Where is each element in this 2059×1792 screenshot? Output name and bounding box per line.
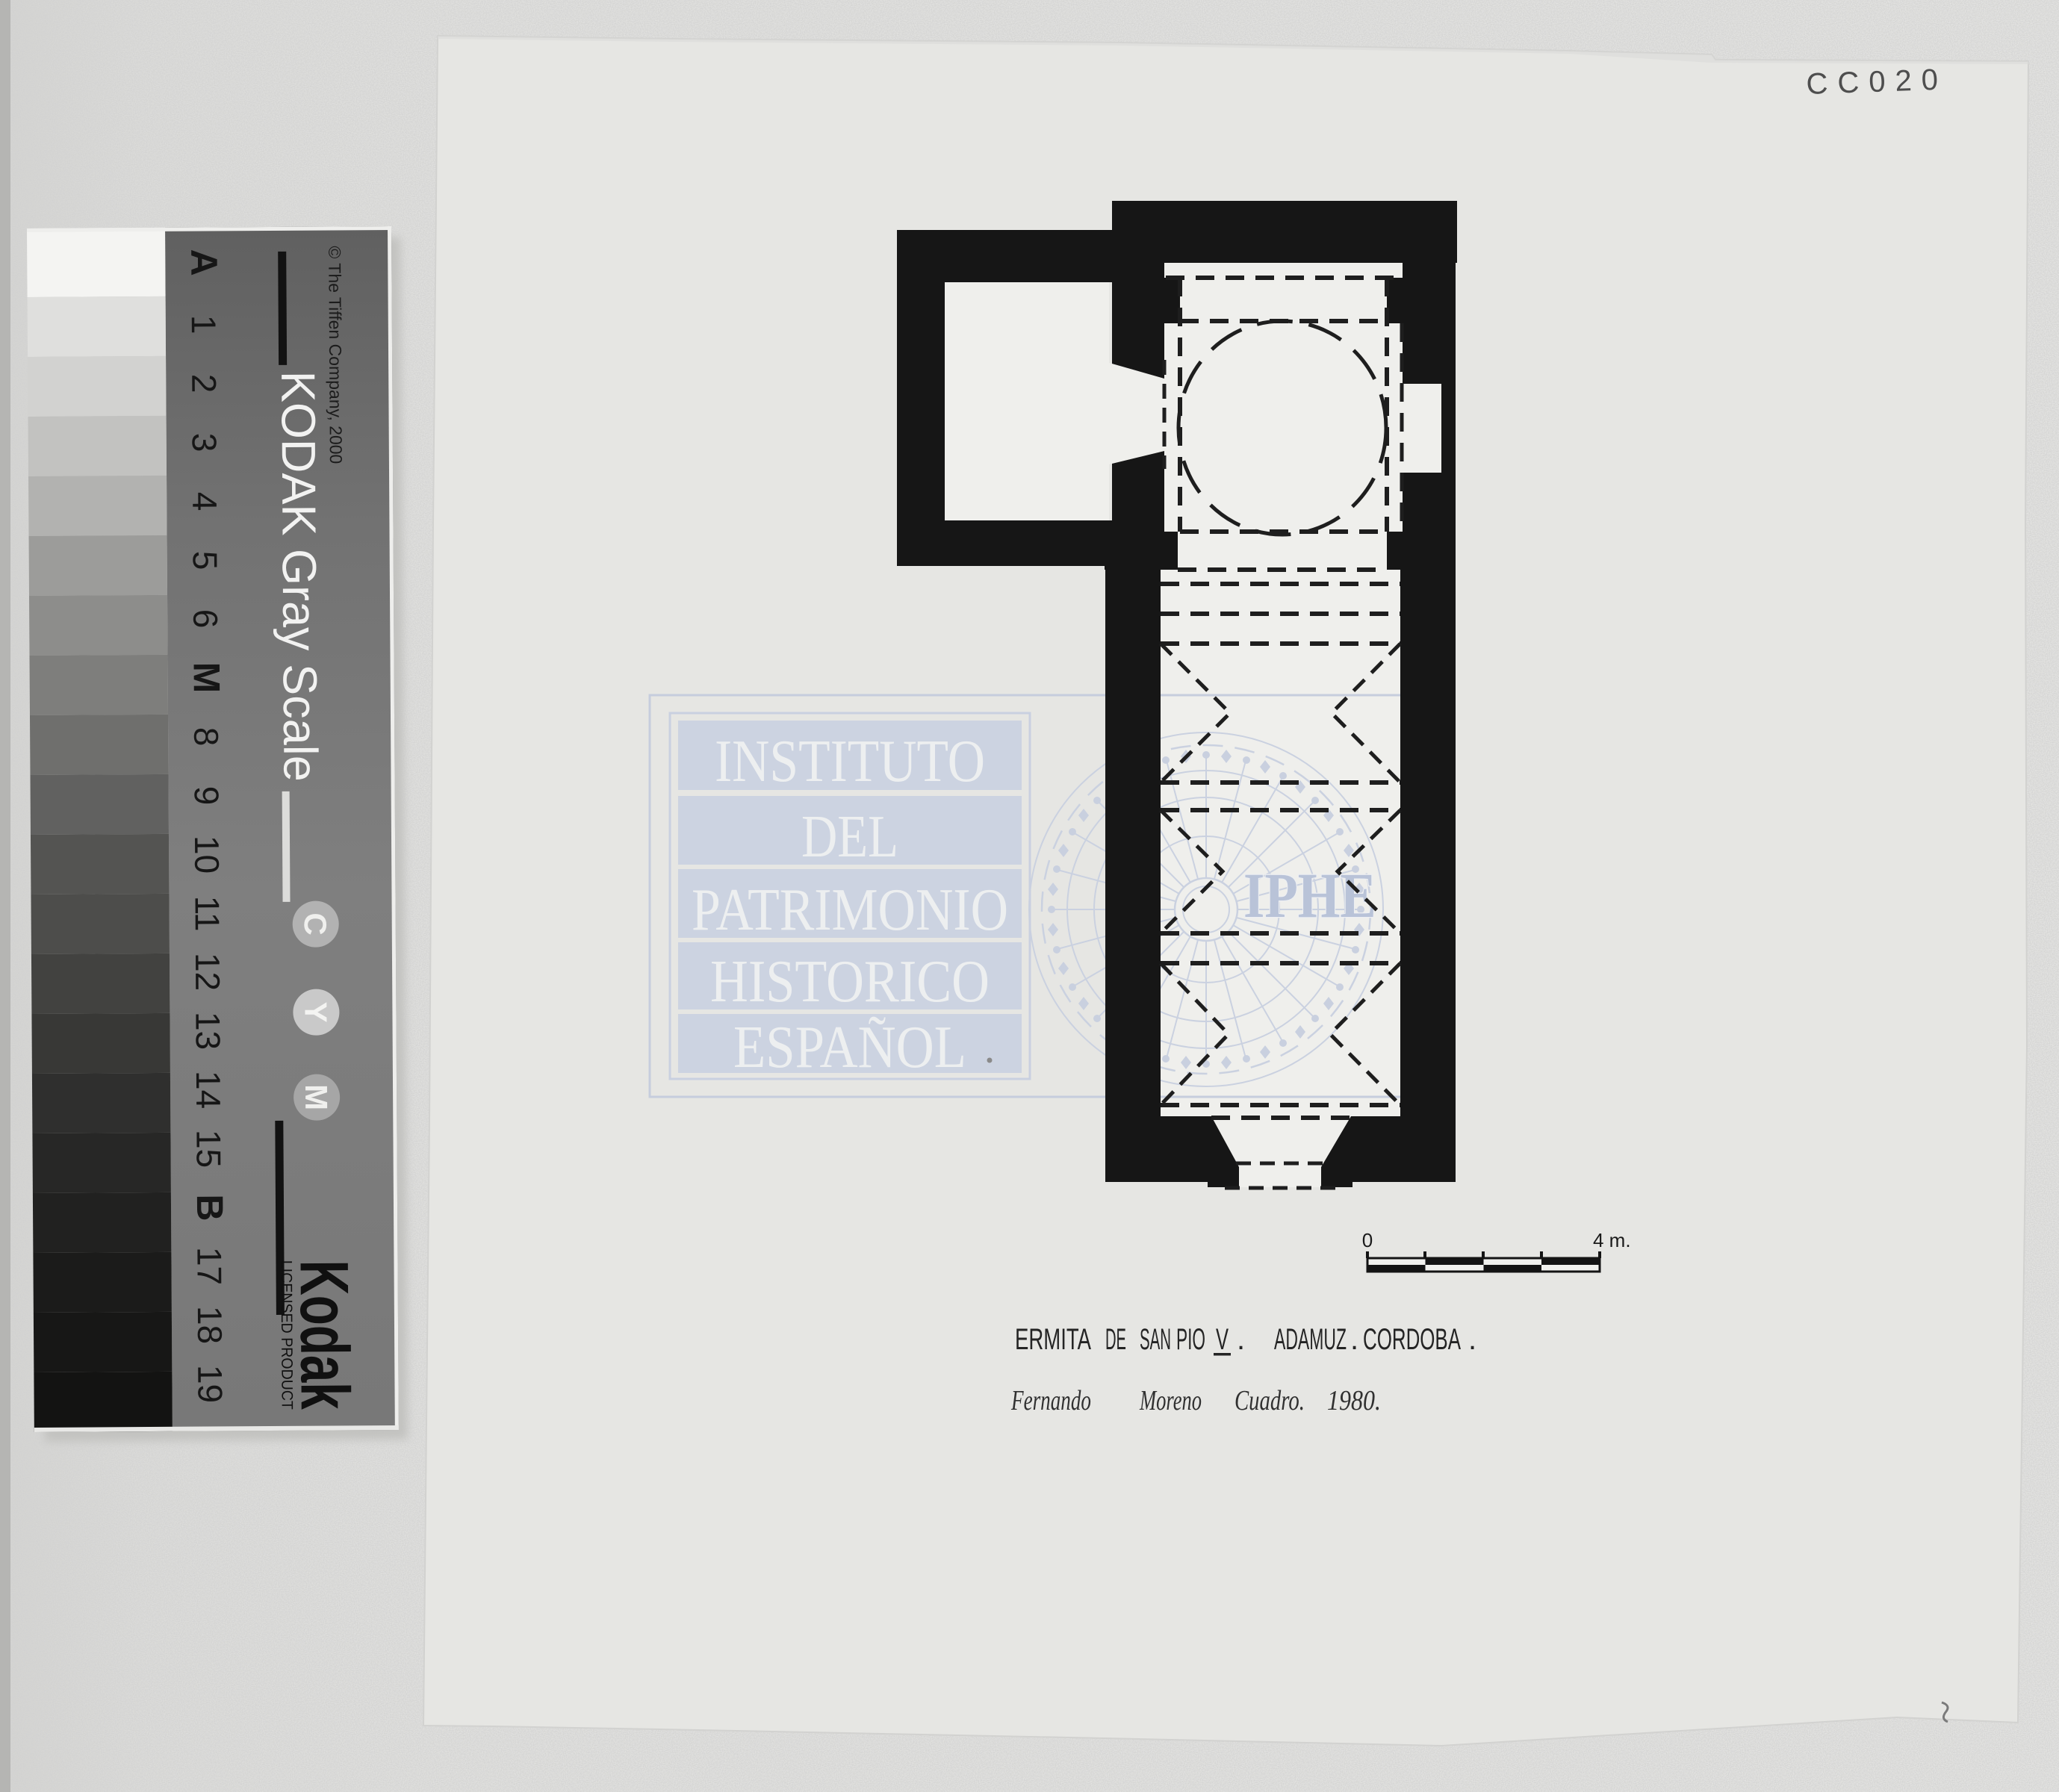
svg-text:1: 1	[184, 315, 223, 335]
svg-text:19: 19	[190, 1365, 229, 1403]
svg-text:LICENSED PRODUCT: LICENSED PRODUCT	[277, 1260, 295, 1410]
svg-text:M: M	[299, 1084, 334, 1110]
svg-text:17: 17	[190, 1247, 229, 1285]
svg-text:Fernando: Fernando	[1010, 1385, 1091, 1416]
svg-text:HISTORICO: HISTORICO	[710, 949, 990, 1015]
svg-text:CORDOBA: CORDOBA	[1363, 1323, 1461, 1356]
svg-text:12: 12	[188, 953, 227, 991]
svg-text:.: .	[1237, 1323, 1245, 1356]
svg-text:DEL: DEL	[801, 804, 898, 870]
svg-text:© The Tiffen Company, 2000: © The Tiffen Company, 2000	[325, 246, 346, 464]
svg-text:.: .	[1468, 1323, 1476, 1356]
svg-text:5: 5	[186, 551, 225, 570]
svg-text:9: 9	[187, 786, 226, 806]
svg-text:SAN: SAN	[1140, 1323, 1171, 1356]
svg-text:.: .	[1350, 1323, 1358, 1356]
svg-text:11: 11	[187, 895, 226, 931]
svg-text:13: 13	[188, 1012, 227, 1050]
svg-text:C: C	[298, 912, 333, 936]
svg-text:Y: Y	[298, 1001, 333, 1022]
svg-text:ESPAÑOL: ESPAÑOL	[733, 1015, 966, 1080]
svg-text:PATRIMONIO: PATRIMONIO	[692, 877, 1008, 943]
svg-text:ADAMUZ: ADAMUZ	[1274, 1323, 1347, 1356]
svg-text:1980.: 1980.	[1327, 1385, 1381, 1416]
svg-text:KODAK Gray Scale: KODAK Gray Scale	[271, 371, 327, 782]
svg-text:8: 8	[187, 727, 226, 747]
svg-text:A: A	[183, 249, 225, 276]
svg-text:Moreno: Moreno	[1139, 1385, 1202, 1416]
svg-text:Cuadro.: Cuadro.	[1235, 1385, 1305, 1416]
svg-text:3: 3	[185, 433, 224, 452]
svg-text:10: 10	[187, 836, 226, 874]
svg-text:PIO: PIO	[1176, 1323, 1205, 1356]
svg-text:M: M	[186, 662, 228, 694]
svg-text:V: V	[1216, 1323, 1229, 1356]
svg-text:DE: DE	[1105, 1323, 1126, 1356]
svg-text:ERMITA: ERMITA	[1015, 1323, 1091, 1356]
svg-text:Kodak: Kodak	[285, 1260, 362, 1410]
svg-text:14: 14	[189, 1071, 228, 1109]
svg-text:2: 2	[184, 374, 223, 393]
svg-text:4: 4	[185, 492, 224, 511]
svg-text:4 m.: 4 m.	[1593, 1229, 1631, 1251]
svg-text:CC020: CC020	[1806, 63, 1948, 101]
svg-text:6: 6	[186, 609, 225, 629]
svg-text:0: 0	[1362, 1229, 1373, 1251]
svg-text:B: B	[189, 1194, 231, 1221]
svg-text:15: 15	[189, 1130, 228, 1168]
svg-text:INSTITUTO: INSTITUTO	[715, 729, 985, 794]
svg-text:IPHE: IPHE	[1243, 859, 1376, 931]
svg-text:18: 18	[190, 1306, 229, 1344]
